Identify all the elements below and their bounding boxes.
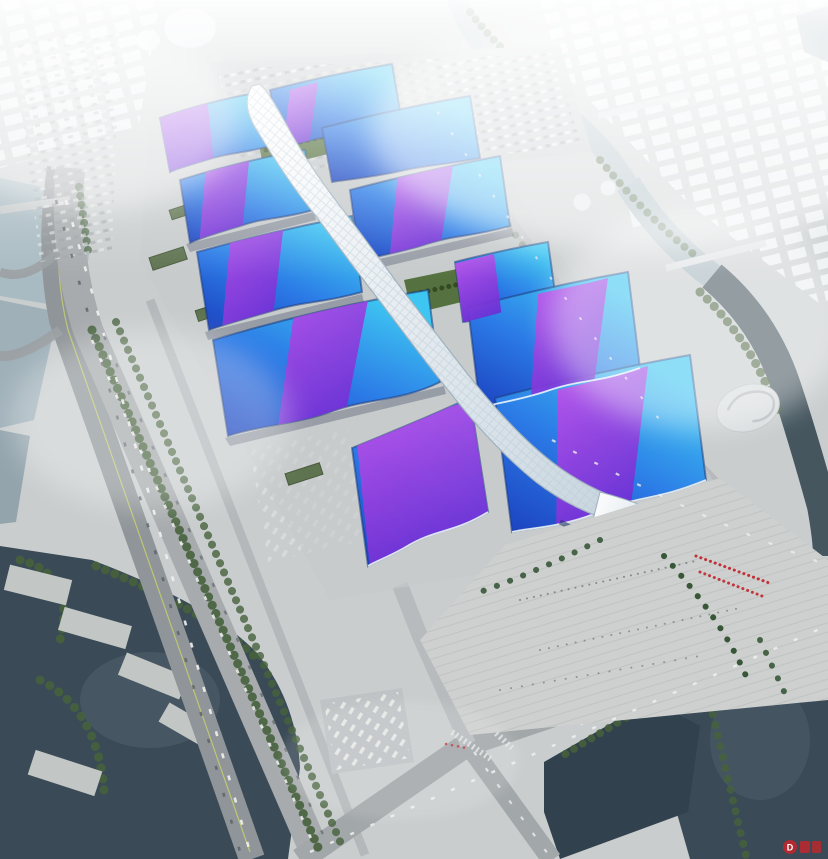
watermark-glyph-block — [800, 841, 810, 853]
watermark: D — [783, 840, 821, 854]
rendering-canvas: D — [0, 0, 828, 859]
mist-bottom — [280, 700, 520, 820]
mist-left — [10, 330, 290, 510]
aerial-rendering-exhibition-center: D — [0, 0, 828, 859]
watermark-logo-letter: D — [787, 843, 794, 853]
watermark-glyph-block — [812, 841, 821, 853]
